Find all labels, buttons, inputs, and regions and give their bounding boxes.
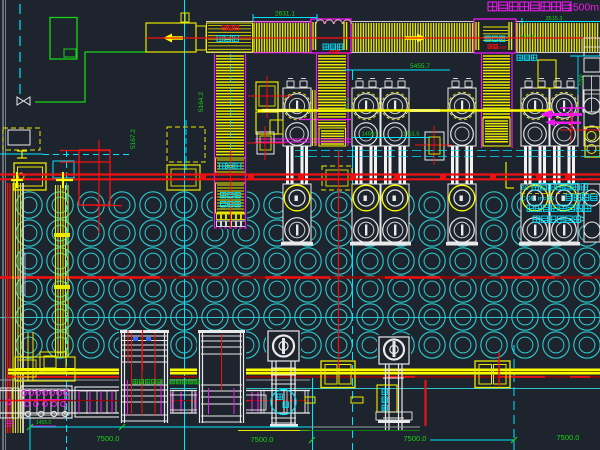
svg-text:1200: 1200 [579,74,585,85]
svg-text:5164.2: 5164.2 [198,92,205,112]
svg-text:1459.9: 1459.9 [362,132,379,138]
svg-text:800: 800 [499,45,507,50]
svg-text:2631.1: 2631.1 [275,11,295,18]
svg-text:1751.5: 1751.5 [403,132,420,138]
svg-text:7500.0: 7500.0 [557,433,580,442]
svg-text:5167.2: 5167.2 [130,129,137,149]
svg-text:COIL m=45: COIL m=45 [521,196,555,203]
svg-text:7500.0: 7500.0 [97,434,120,443]
svg-text:1500m: 1500m [567,2,599,14]
svg-text:5455.7: 5455.7 [410,63,430,70]
svg-text:60: 60 [521,185,529,192]
svg-text:7500.0: 7500.0 [251,435,274,444]
svg-text:7500.0: 7500.0 [404,434,427,443]
svg-text:1455.0: 1455.0 [36,420,52,426]
svg-text:3515.3: 3515.3 [546,16,563,22]
